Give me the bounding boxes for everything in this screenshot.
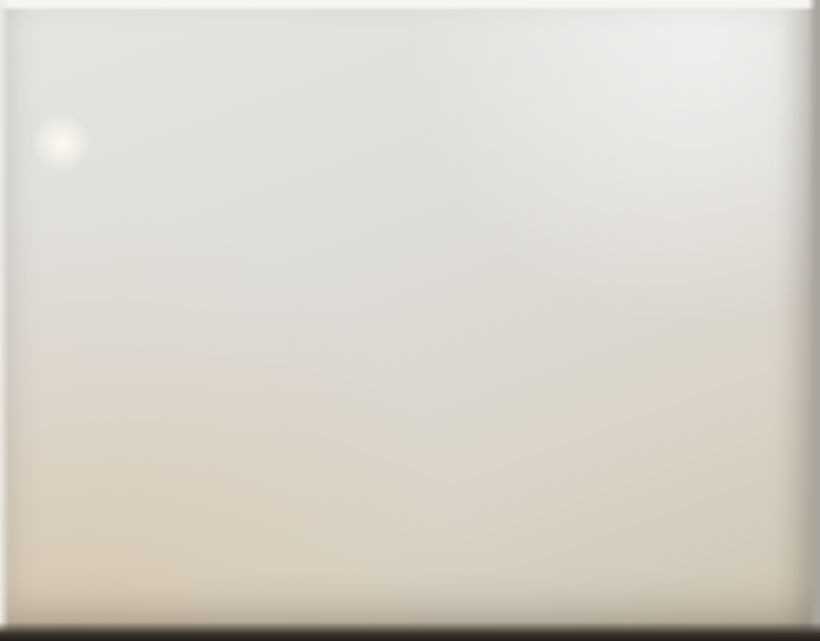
map-drawing (0, 0, 820, 641)
photo-of-tianzifang-map-board (0, 0, 820, 641)
